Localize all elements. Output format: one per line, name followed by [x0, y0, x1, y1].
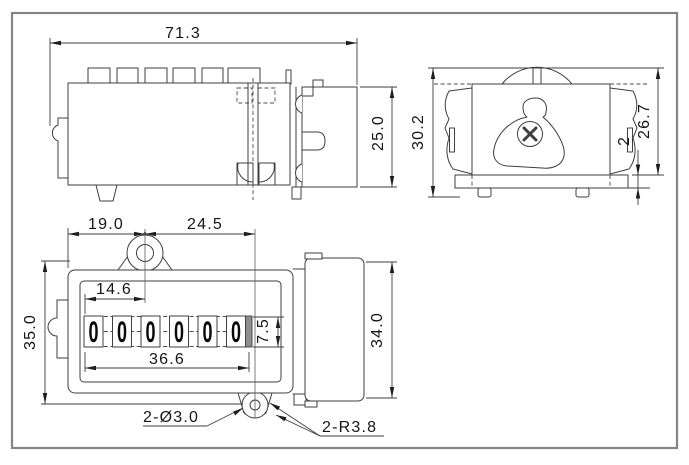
callout-label-holes: 2-Ø3.0 [143, 409, 199, 426]
dim-label-71-3: 71.3 [165, 25, 201, 42]
front-left-boss [48, 300, 68, 358]
top-view-left-boss [52, 118, 68, 178]
counter-digit: 0 [145, 317, 155, 350]
callout-holes: 2-Ø3.0 [143, 408, 243, 426]
counter-digit: 0 [202, 317, 212, 350]
dim-label-7-5: 7.5 [255, 318, 272, 344]
wheel-edge-hatch [246, 316, 253, 347]
dim-label-25-0: 25.0 [370, 115, 387, 151]
dim-label-19-0: 19.0 [88, 216, 124, 233]
top-view-tabs [88, 68, 291, 84]
front-rear-block [305, 258, 364, 401]
counter-digit: 0 [117, 317, 127, 350]
counter-digit: 0 [231, 317, 241, 350]
dim-label-36-6: 36.6 [149, 351, 185, 368]
drawing-sheet: 71.3 25.0 [0, 0, 689, 465]
dim-label-14-6: 14.6 [96, 281, 132, 298]
dim-top-depth: 25.0 [360, 87, 397, 187]
front-strip-foot [294, 394, 306, 405]
dim-label-30-2: 30.2 [410, 114, 427, 150]
dim-label-2: 2 [616, 136, 633, 146]
side-view-dome [502, 67, 572, 84]
drawing-canvas: 71.3 25.0 [0, 0, 689, 465]
top-view-foot [96, 185, 117, 201]
side-view-base [455, 175, 628, 188]
top-view-body [68, 83, 290, 185]
dim-label-26-7: 26.7 [636, 103, 653, 139]
side-view: 30.2 26.7 2 [410, 67, 664, 205]
dim-label-24-5: 24.5 [187, 216, 223, 233]
counter-digit: 0 [88, 317, 98, 350]
front-view: 0 0 0 0 0 0 19.0 24.5 [22, 216, 397, 436]
callout-radius: 2-R3.8 [270, 403, 384, 436]
callout-label-radius: 2-R3.8 [322, 419, 377, 436]
top-view: 71.3 25.0 [50, 25, 397, 201]
dim-front-rear-height: 34.0 [366, 262, 397, 398]
dim-label-35-0: 35.0 [22, 314, 39, 350]
counter-digit: 0 [174, 317, 184, 350]
dim-label-34-0: 34.0 [369, 312, 386, 348]
